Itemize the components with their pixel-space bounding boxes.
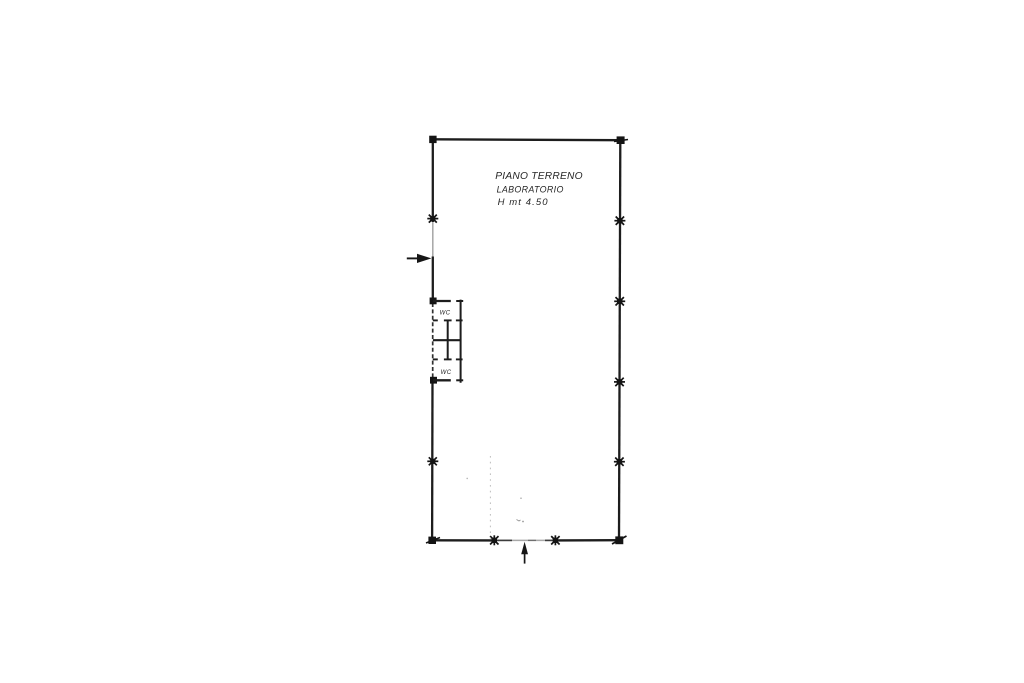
svg-text:WC: WC (441, 370, 452, 376)
svg-text:H mt 4.50: H mt 4.50 (498, 197, 549, 208)
svg-text:WC: WC (440, 310, 451, 316)
svg-text:PIANO TERRENO: PIANO TERRENO (495, 171, 583, 182)
svg-text:LABORATORIO: LABORATORIO (497, 184, 564, 194)
